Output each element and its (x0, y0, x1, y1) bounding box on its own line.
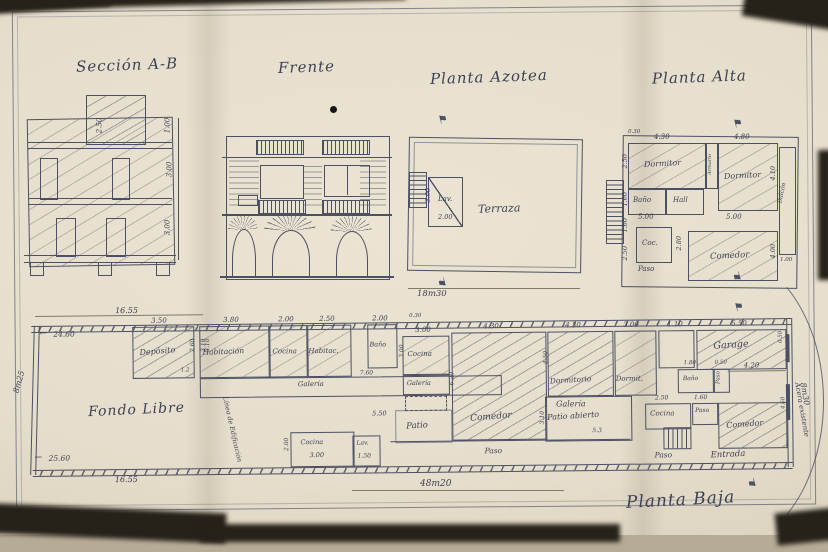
frente-upper-wall-siding (304, 164, 322, 210)
baja-dim-cocina2-w: 3.00 (415, 327, 431, 334)
alta-bano-label: Baño (633, 197, 651, 204)
frente-title: Frente (278, 59, 336, 76)
alta-paso-label: Paso (638, 266, 654, 273)
seccion-footing (156, 262, 170, 276)
ink-dot (330, 106, 337, 113)
alta-dim-dorm2-h: 4.10 (770, 166, 777, 180)
frente-balcony-ledge (238, 195, 258, 206)
baja-fondo-libre-label: Fondo Libre (88, 401, 185, 419)
baja-dim-dormitorio-w: 4.30 (565, 322, 581, 329)
frente-ground-line (220, 276, 394, 278)
alta-armario-label: Armario (708, 154, 713, 175)
baja-dim-cocina2-d: 3.00 (399, 344, 405, 357)
azotea-terraza-label: Terraza (478, 202, 521, 214)
alta-coc-label: Coc. (642, 240, 658, 247)
seccion-footing (30, 262, 44, 276)
arrow-left-icon: ← (39, 330, 47, 339)
alta-dim-left-mid: 1.60 (622, 218, 629, 232)
baja-dim-deposito-w: 3.50 (151, 318, 167, 325)
blueprint-scan: { "icons": { "arrow_left": "←", "flag": … (0, 0, 828, 535)
frente-cornice-line (222, 157, 392, 158)
baja-dim-habitacion-d: 3.10 (201, 338, 207, 351)
alta-title: Planta Alta (652, 68, 747, 86)
alta-dim-row2: 5.00 (726, 214, 742, 221)
baja-galeria2-label: Galería (407, 380, 431, 387)
alta-hall-label: Hall (673, 197, 688, 204)
alta-dim-balcon-w: 1.00 (780, 258, 792, 264)
baja-dim-comedor1-w: 4.30 (483, 323, 499, 330)
azotea-overall-dim: 18m30 (417, 290, 447, 299)
baja-dim-lav-ext-w: 1.50 (358, 453, 371, 459)
paper-edge-shadow (818, 150, 828, 280)
baja-patio-label: Patio (406, 421, 428, 431)
baja-dim-habitac-w: 2.50 (319, 316, 335, 323)
baja-dim-galeria3-w: 5.3 (592, 428, 602, 434)
baja-cocina-ext-label: Cocina (300, 439, 323, 446)
baja-dim-galeria3-d: 3.10 (540, 411, 546, 424)
baja-cocina1-label: Cocina (272, 348, 296, 355)
baja-dim-deposito-d: 2.60 (190, 339, 196, 352)
frente-window-left (260, 165, 304, 199)
baja-cocina2-label: Cocina (407, 351, 431, 358)
baja-dim-cocina1-w: 2.00 (278, 316, 294, 323)
baja-lav-ext-label: Lav. (356, 440, 368, 446)
baja-dim-habitacion-w: 3.80 (223, 317, 239, 324)
frente-parapet-balustrade-left (256, 140, 304, 155)
seccion-footing (98, 262, 112, 276)
azotea-lav-width-dim: 2.00 (438, 214, 452, 221)
seccion-title: Sección A-B (76, 56, 179, 75)
alta-stairs (606, 180, 624, 244)
baja-dim-cocina-ext-d: 2.00 (284, 438, 290, 451)
baja-dim-offset-bottom: 25.60 (49, 455, 71, 463)
paper-edge-shadow (775, 506, 828, 545)
seccion-roof-slab (28, 142, 172, 149)
baja-dim-offset-top: 24.60 (53, 331, 75, 339)
seccion-dim-lower-floor: 3.00 (164, 220, 171, 236)
baja-dim-fondo-bottom: 16.55 (115, 476, 138, 484)
alta-dim-small-top: 0.30 (628, 130, 640, 136)
alta-dim-row1: 5.00 (638, 214, 654, 221)
baja-dim-galeria1-l: 7.60 (360, 370, 373, 376)
baja-dim-comedor1-d: 6.20 (449, 372, 455, 385)
baja-dim-dormitorio-d: 4.50 (543, 351, 549, 364)
baja-galeria1-label: Galería (298, 381, 324, 388)
seccion-dim-upper-floor: 3.00 (166, 162, 173, 178)
paper-edge-shadow (200, 524, 620, 542)
baja-habitacion-label: Habitación (202, 347, 244, 356)
baja-dim-deposito-door: 1.2 (181, 368, 190, 374)
frente-parapet-balustrade-right (322, 140, 370, 155)
alta-dim-dorm2-w: 4.80 (734, 134, 750, 141)
baja-dim-mid: 5.50 (372, 410, 387, 417)
seccion-dim-tower: 2.50 (96, 118, 103, 134)
frente-balcony-balustrade-left (258, 200, 306, 214)
seccion-dim-line (178, 118, 179, 260)
baja-dim-cocina-ext-w: 3.00 (310, 452, 325, 459)
frente-balcony-balustrade-right (322, 200, 370, 214)
frente-window-mullion (347, 165, 348, 195)
alta-dim-bano-h: 1.60 (622, 192, 629, 206)
baja-dim-fondo-top: 16.55 (115, 307, 138, 315)
baja-linea-edificacion-note: Línea de Edificación (222, 396, 243, 463)
baja-habitac-label: Habitac. (308, 348, 338, 355)
baja-dim-bano1-w: 2.00 (372, 315, 388, 322)
alta-dim-dorm1-w: 4.30 (654, 134, 670, 141)
baja-paso-main-label: Paso (485, 447, 503, 455)
baja-galeria3-label: Galería (556, 400, 586, 408)
baja-dim-small-top: 0.30 (409, 314, 421, 320)
seccion-door-lower-right (106, 218, 126, 257)
baja-comedor1-room (451, 332, 547, 441)
azotea-lav-depth-dim: 3.00 (425, 188, 432, 202)
azotea-title: Planta Azotea (430, 68, 548, 87)
alta-dim-left-low: 2.50 (622, 246, 629, 260)
seccion-door-upper-right (112, 158, 130, 200)
alta-dim-coc-h: 2.80 (676, 236, 683, 250)
seccion-door-upper-left (40, 158, 58, 200)
alta-dim-comedor-h: 4.00 (770, 244, 777, 258)
arrow-left-icon: ← (35, 454, 43, 463)
baja-bano1-label: Baño (369, 341, 386, 348)
baja-dormitorio-room (547, 331, 614, 397)
baja-dim-lot-length: 48m20 (420, 480, 451, 489)
baja-dim-line-lot-length (352, 490, 564, 491)
alta-dim-left-top: 2.50 (622, 154, 629, 168)
seccion-dim-parapet: 1.00 (164, 118, 171, 134)
azotea-lav-label: Lav. (438, 196, 452, 203)
seccion-door-lower-left (56, 218, 76, 257)
